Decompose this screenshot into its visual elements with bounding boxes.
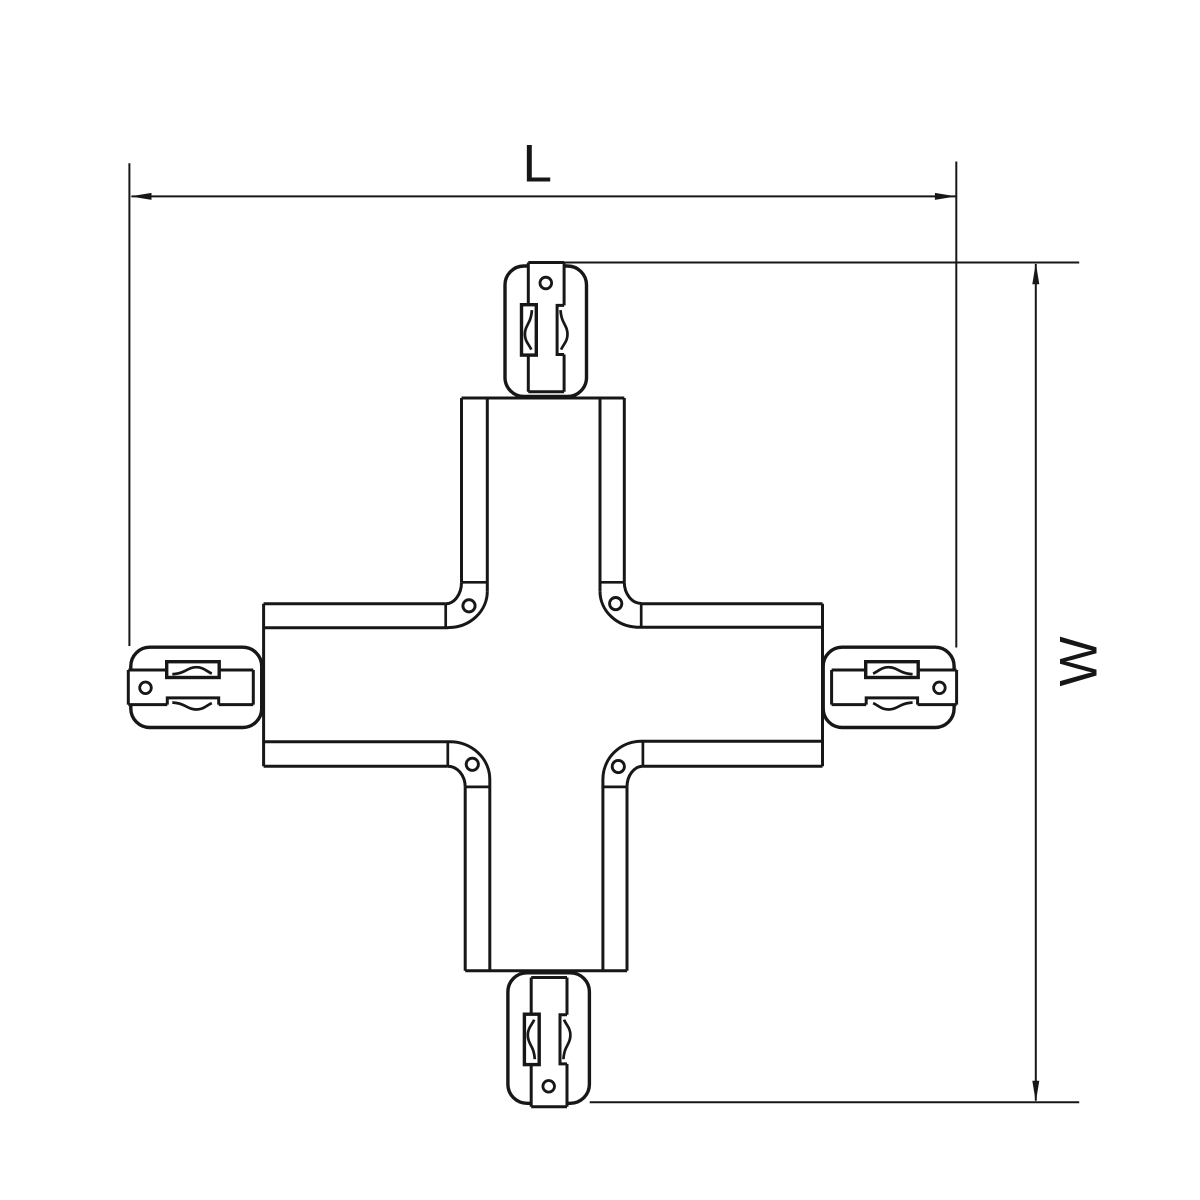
svg-text:L: L <box>523 134 552 193</box>
svg-text:W: W <box>1049 636 1108 686</box>
